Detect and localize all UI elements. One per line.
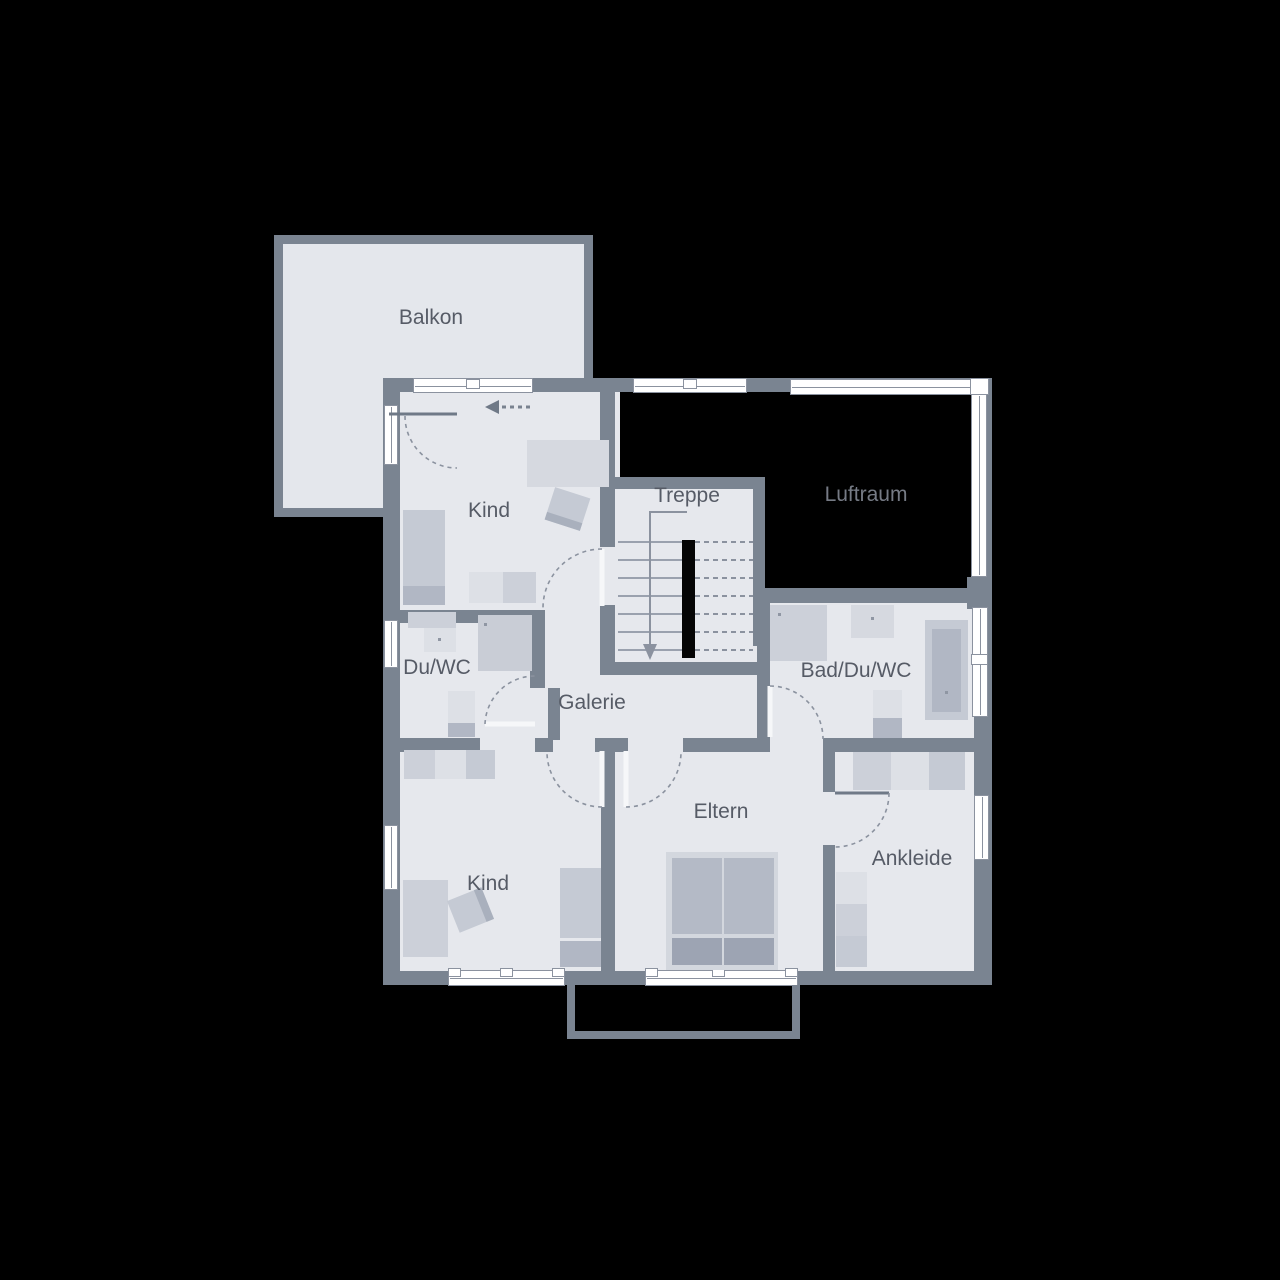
glazing-corner-post xyxy=(970,378,989,395)
bed-eltern-pillow xyxy=(672,938,722,965)
wall-bad-left xyxy=(757,603,770,752)
wall-duwc-right xyxy=(530,610,545,688)
room-label-bad: Bad/Du/WC xyxy=(801,659,912,683)
room-label-treppe: Treppe xyxy=(654,484,720,508)
stair-room-floor xyxy=(616,489,753,662)
wall-kind-eltern xyxy=(601,752,615,971)
window-mullion xyxy=(552,968,565,977)
desk-kind-upper xyxy=(527,440,609,487)
desk-kind-lower xyxy=(403,880,448,957)
window-ankleide-right xyxy=(974,795,989,860)
dresser-kind-upper xyxy=(503,572,536,603)
floor-plan: Balkon Kind Treppe Luftraum Du/WC Galeri… xyxy=(0,0,1280,1280)
wall-ankleide-left-a xyxy=(823,752,835,792)
wardrobe-ankleide-top xyxy=(929,752,965,790)
shelf-kind-lower xyxy=(466,750,495,779)
bed-eltern-mattress xyxy=(724,858,774,934)
window-mullion xyxy=(466,379,480,389)
wardrobe-ankleide-left xyxy=(836,872,867,904)
room-label-eltern: Eltern xyxy=(694,800,749,824)
window-mullion xyxy=(683,379,697,389)
wall-mid-left-b xyxy=(535,738,553,752)
wardrobe-kind-lower xyxy=(560,868,601,938)
room-label-galerie: Galerie xyxy=(558,691,626,715)
wardrobe-ankleide-left xyxy=(836,904,867,936)
room-label-kind-lower: Kind xyxy=(467,872,509,896)
window-mullion xyxy=(971,654,988,665)
bed-kind-upper xyxy=(403,510,445,586)
shelf-kind-lower xyxy=(404,750,435,779)
room-label-ankleide: Ankleide xyxy=(872,847,953,871)
window-mullion xyxy=(448,968,461,977)
glazing-luftraum-right xyxy=(971,394,987,577)
washbasin-duwc xyxy=(424,628,456,652)
wall-door-pier xyxy=(595,738,628,752)
wardrobe-kind-lower-low xyxy=(560,941,601,967)
wall-luftraum-bottom xyxy=(757,588,972,603)
bathtub-bad-inner xyxy=(932,629,961,712)
room-label-duwc: Du/WC xyxy=(403,656,471,680)
wardrobe-ankleide-top xyxy=(891,752,929,790)
shower-bad xyxy=(770,605,827,661)
washbasin-bad xyxy=(851,605,894,638)
window-kind-lower-left xyxy=(384,825,398,890)
dresser-kind-upper xyxy=(469,572,503,603)
bed-kind-upper-foot xyxy=(403,586,445,605)
window-mullion xyxy=(645,968,658,977)
window-mullion xyxy=(785,968,798,977)
toilet-bad xyxy=(873,690,902,718)
wardrobe-ankleide-left xyxy=(836,936,867,967)
door-balcony-glazing xyxy=(384,405,398,465)
wall-exterior-left xyxy=(383,378,400,985)
wardrobe-ankleide-top xyxy=(853,752,891,790)
shelf-kind-lower xyxy=(435,750,466,779)
toilet-bad-tank xyxy=(873,718,902,738)
shower-duwc xyxy=(478,615,532,671)
toilet-duwc xyxy=(448,691,475,723)
room-label-luftraum: Luftraum xyxy=(825,483,908,507)
counter-duwc xyxy=(408,612,456,628)
glazing-luftraum-top xyxy=(790,379,987,395)
bed-eltern-mattress xyxy=(672,858,722,934)
bed-eltern-pillow xyxy=(724,938,774,965)
room-label-balkon: Balkon xyxy=(399,306,463,330)
wall-mid-right xyxy=(823,738,992,752)
wall-ankleide-left-b xyxy=(823,845,835,971)
toilet-duwc-tank xyxy=(448,723,475,737)
window-duwc-left xyxy=(384,620,398,668)
lower-floor-projection xyxy=(567,985,800,1039)
wall-galerie-eltern xyxy=(683,738,757,752)
room-label-kind-upper: Kind xyxy=(468,499,510,523)
wall-right-pier xyxy=(967,577,992,609)
wall-stair-bottom xyxy=(600,662,765,675)
window-mullion xyxy=(500,968,513,977)
